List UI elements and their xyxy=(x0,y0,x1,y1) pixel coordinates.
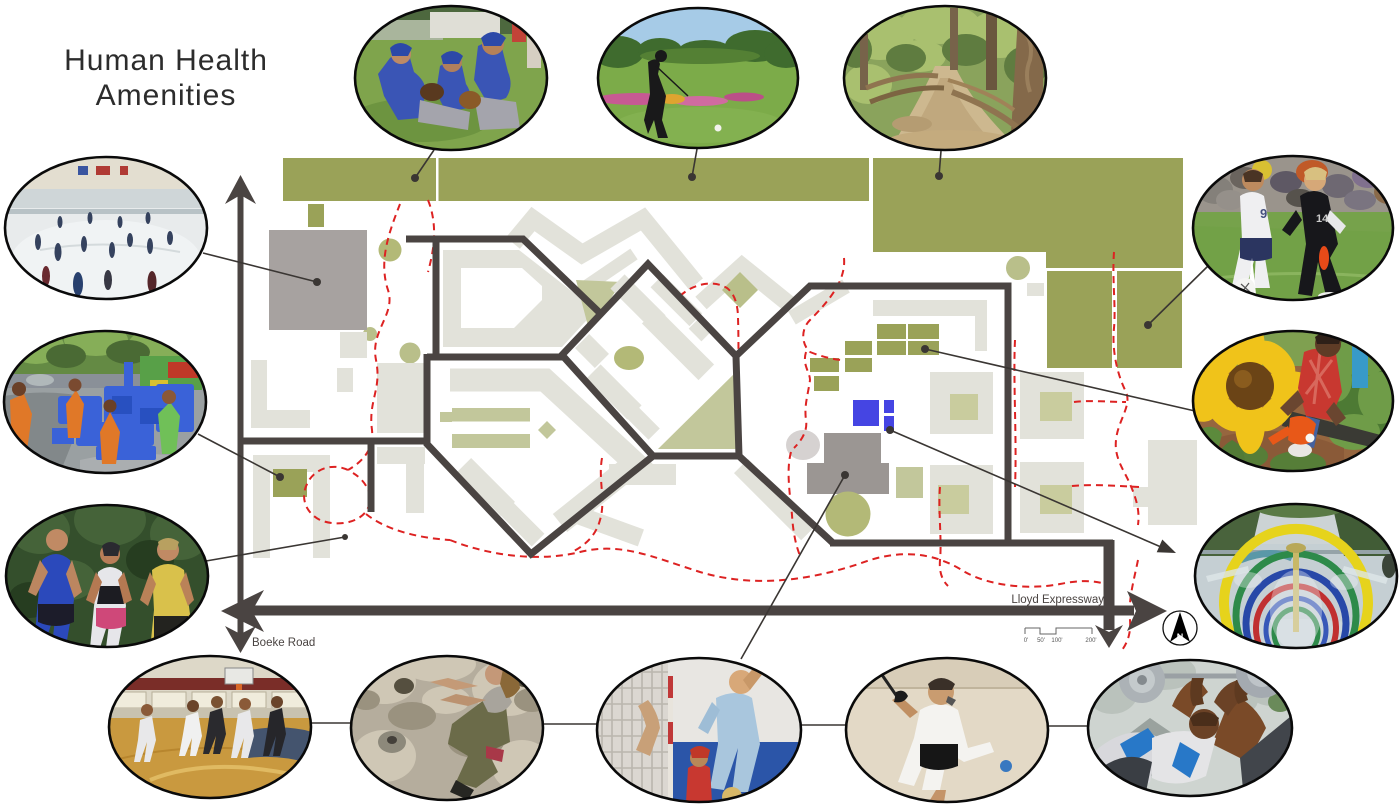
svg-text:100': 100' xyxy=(1051,638,1062,644)
svg-text:Boeke Road: Boeke Road xyxy=(252,637,315,649)
svg-text:Lloyd Expressway: Lloyd Expressway xyxy=(1011,594,1104,606)
svg-text:N: N xyxy=(1177,632,1184,642)
svg-text:Amenities: Amenities xyxy=(96,79,237,112)
svg-text:0': 0' xyxy=(1024,638,1028,644)
svg-text:14: 14 xyxy=(1316,213,1329,225)
svg-text:50': 50' xyxy=(1037,638,1045,644)
svg-text:Human Health: Human Health xyxy=(64,44,268,77)
svg-text:9: 9 xyxy=(1260,206,1267,221)
svg-text:200': 200' xyxy=(1085,638,1096,644)
